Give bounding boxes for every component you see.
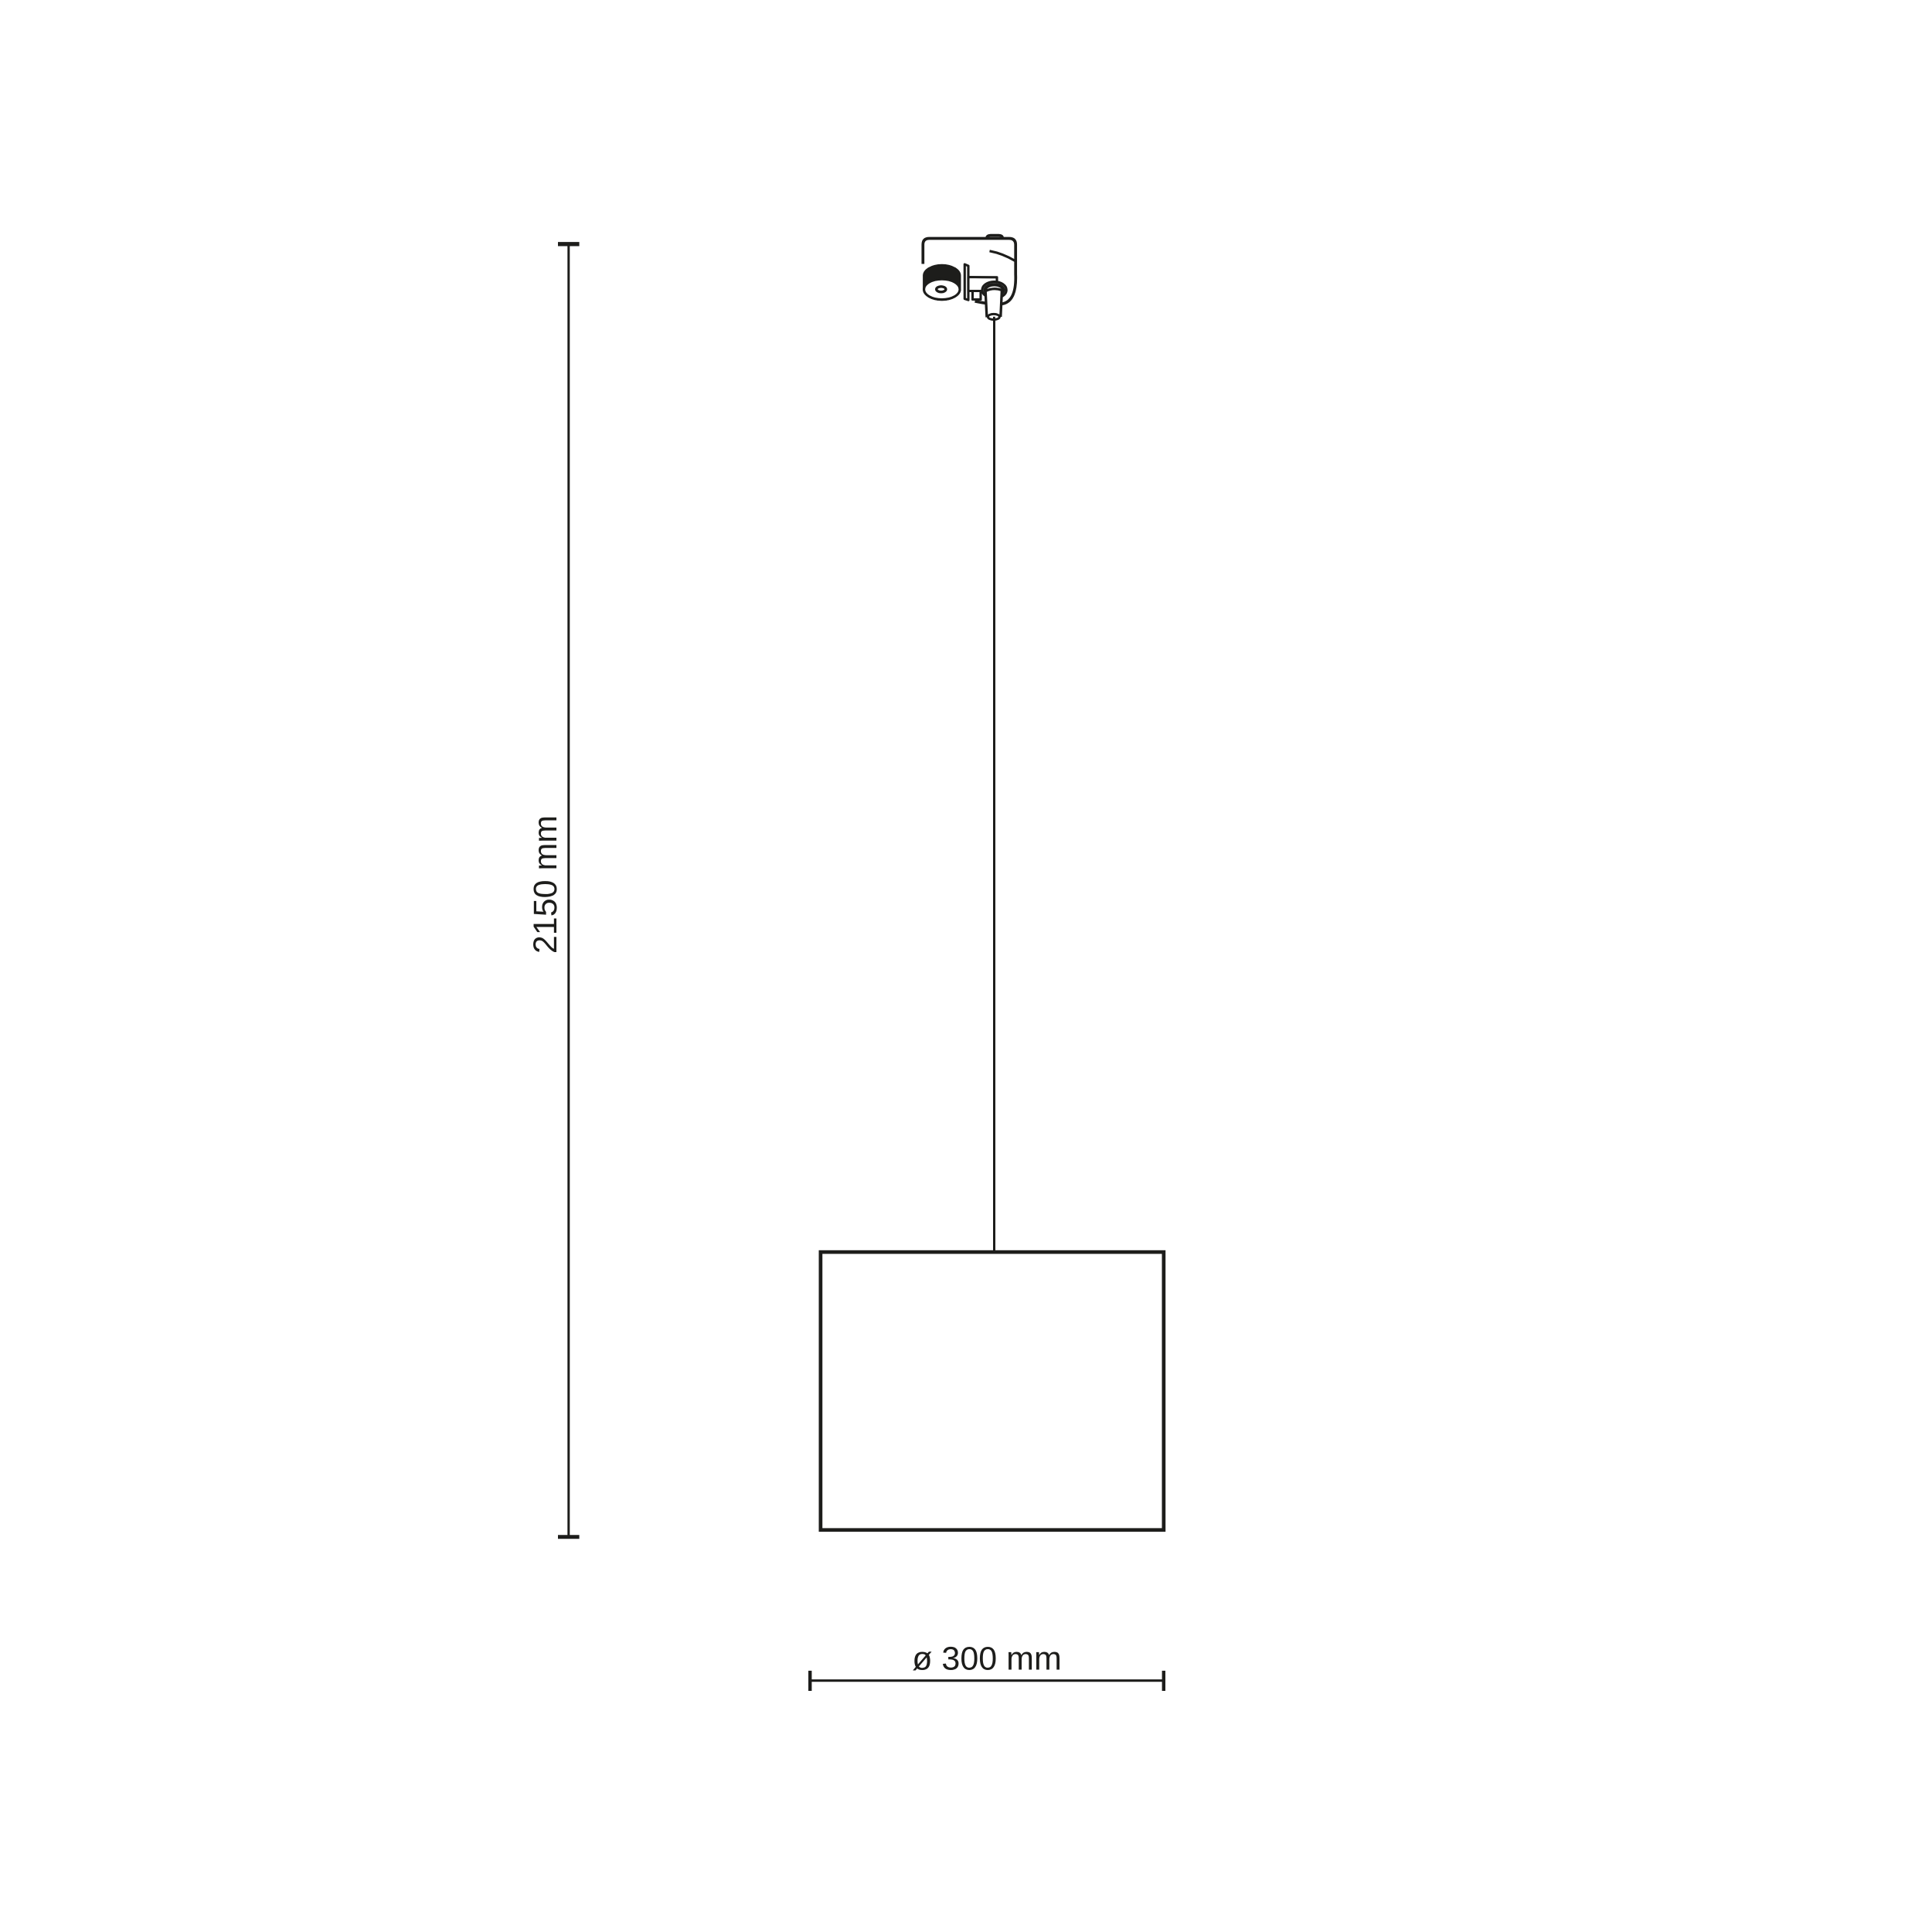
svg-text:ø 300 mm: ø 300 mm: [912, 1641, 1062, 1678]
svg-text:2150 mm: 2150 mm: [527, 815, 564, 954]
